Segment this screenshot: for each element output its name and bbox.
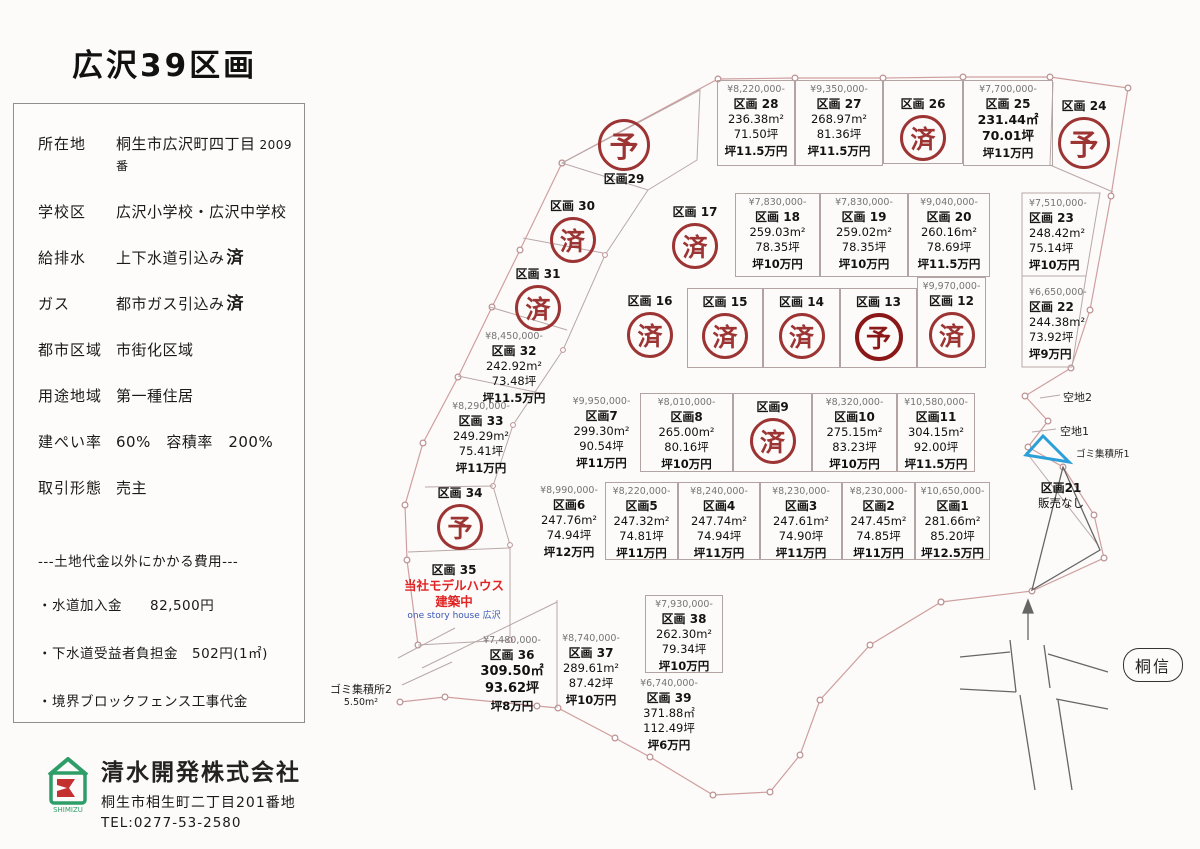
company-tel: TEL:0277-53-2580 [101, 815, 301, 831]
lot-tsubo: 73.92坪 [1029, 330, 1092, 345]
lot-tsubo: 79.34坪 [646, 642, 722, 657]
lot-price: ¥7,830,000- [821, 196, 907, 209]
status-stamp: 済 [550, 217, 596, 263]
lot-unit-price: 坪6万円 [628, 737, 710, 753]
lot-area: 289.61m² [558, 661, 624, 676]
lot-area: 259.03m² [736, 225, 819, 240]
lot-tsubo: 93.62坪 [468, 680, 556, 697]
lot-tsubo: 74.85坪 [843, 529, 914, 544]
lot-tsubo: 81.36坪 [796, 127, 882, 142]
lot-27[interactable]: ¥9,350,000- 区画 27 268.97m² 81.36坪 坪11.5万… [795, 80, 883, 166]
info-row-transaction: 取引形態 売主 [38, 478, 294, 498]
lot-area: 265.00m² [641, 425, 732, 440]
status-stamp: 予 [598, 119, 650, 171]
lot-7[interactable]: ¥9,950,000- 区画7 299.30m² 90.54坪 坪11万円 [563, 393, 640, 472]
lot-number: 区画 39 [628, 691, 710, 706]
lot-number: 区画 14 [764, 295, 839, 310]
lot-12[interactable]: ¥9,970,000- 区画 12 済 [917, 277, 986, 368]
status-stamp: 済 [702, 313, 748, 359]
lot-number: 区画 31 [502, 267, 574, 282]
lot-area: 259.02m² [821, 225, 907, 240]
lot-price: ¥8,740,000- [558, 632, 624, 645]
lot-tsubo: 71.50坪 [718, 127, 794, 142]
lot-35-model-house[interactable]: 区画 35 当社モデルハウス 建築中 one story house 広沢 [403, 562, 505, 626]
lot-unit-price: 坪10万円 [641, 456, 732, 472]
status-stamp: 済 [672, 223, 718, 269]
lot-number: 区画3 [761, 499, 841, 514]
lot-tsubo: 73.48坪 [470, 374, 558, 389]
lot-area: 260.16m² [909, 225, 989, 240]
lot-price: ¥6,740,000- [628, 677, 710, 690]
lot-10[interactable]: ¥8,320,000- 区画10 275.15m² 83.23坪 坪10万円 [812, 393, 897, 472]
lot-11[interactable]: ¥10,580,000- 区画11 304.15m² 92.00坪 坪11.5万… [897, 393, 975, 472]
lot-price: ¥8,450,000- [470, 330, 558, 343]
lot-19[interactable]: ¥7,830,000- 区画 19 259.02m² 78.35坪 坪10万円 [820, 193, 908, 277]
lot-number: 区画 37 [558, 646, 624, 661]
lot-36[interactable]: ¥7,480,000- 区画 36 309.50㎡ 93.62坪 坪8万円 [468, 632, 556, 706]
lot-unit-price: 坪11万円 [679, 545, 759, 561]
lot-price: ¥8,220,000- [718, 83, 794, 96]
lot-unit-price: 坪10万円 [821, 256, 907, 272]
lot-21-not-for-sale: 区画21 販売なし [1028, 480, 1094, 520]
status-stamp: 済 [627, 312, 673, 358]
lot-tsubo: 75.14坪 [1029, 241, 1100, 256]
lot-unit-price: 坪11.5万円 [718, 143, 794, 159]
lot-price: ¥8,290,000- [437, 400, 525, 413]
trash-station-2-label: ゴミ集積所2 5.50m² [330, 681, 392, 708]
lot-13[interactable]: 区画 13 予 [840, 288, 917, 368]
north-arrow-icon [1023, 600, 1033, 613]
lot-price: ¥7,700,000- [964, 83, 1052, 96]
status-stamp: 済 [929, 312, 975, 358]
lot-1[interactable]: ¥10,650,000- 区画1 281.66m² 85.20坪 坪12.5万円 [915, 482, 990, 560]
lot-3[interactable]: ¥8,230,000- 区画3 247.61m² 74.90坪 坪11万円 [760, 482, 842, 560]
lot-area: 244.38m² [1029, 315, 1092, 330]
lot-number: 区画11 [898, 410, 974, 425]
lot-number: 区画10 [813, 410, 896, 425]
lot-unit-price: 坪12万円 [533, 544, 605, 560]
lot-number: 区画 15 [688, 295, 762, 310]
lot-32[interactable]: ¥8,450,000- 区画 32 242.92m² 73.48坪 坪11.5万… [470, 328, 558, 390]
company-block: SHIMIZU 清水開発株式会社 桐生市相生町二丁目201番地 TEL:0277… [45, 753, 301, 831]
lot-area: 299.30m² [563, 424, 640, 439]
lot-25[interactable]: ¥7,700,000- 区画 25 231.44㎡ 70.01坪 坪11万円 [963, 80, 1053, 166]
lot-price: ¥8,990,000- [533, 484, 605, 497]
lot-area: 247.76m² [533, 513, 605, 528]
lot-area: 249.29m² [437, 429, 525, 444]
lot-tsubo: 74.81坪 [606, 529, 677, 544]
lot-unit-price: 坪11万円 [606, 545, 677, 561]
lot-number: 区画29 [593, 172, 655, 187]
lot-number: 区画 32 [470, 344, 558, 359]
svg-text:SHIMIZU: SHIMIZU [53, 806, 83, 814]
lot-price: ¥8,220,000- [606, 485, 677, 498]
lot-area: 247.74m² [679, 514, 759, 529]
status-stamp: 済 [900, 115, 946, 161]
lot-22[interactable]: ¥6,650,000- 区画 22 244.38m² 73.92坪 坪9万円 [1022, 284, 1092, 368]
trash-station-1-triangle-icon [1026, 436, 1069, 462]
cost-item-sewer: ・下水道受益者負担金 502円(1㎡) [38, 642, 294, 662]
lot-number: 区画 38 [646, 612, 722, 627]
lot-24[interactable]: 区画 24 予 [1048, 98, 1120, 174]
lot-area: 247.45m² [843, 514, 914, 529]
page-title: 広沢39区画 [72, 40, 257, 85]
lot-unit-price: 坪9万円 [1029, 346, 1092, 362]
lot-tsubo: 85.20坪 [916, 529, 989, 544]
trash-station-2-area: 5.50m² [330, 697, 392, 708]
lot-area: 236.38m² [718, 112, 794, 127]
lot-31[interactable]: 区画 31 済 [502, 266, 574, 332]
status-stamp: 済 [779, 313, 825, 359]
lot-unit-price: 坪11.5万円 [909, 256, 989, 272]
model-house-note-en: one story house 広沢 [403, 610, 505, 622]
lot-23[interactable]: ¥7,510,000- 区画 23 248.42m² 75.14坪 坪10万円 [1022, 195, 1100, 275]
status-stamp: 予 [1058, 117, 1110, 169]
lot-price: ¥7,510,000- [1029, 197, 1100, 210]
property-info-panel: 所在地 桐生市広沢町四丁目2009番 学校区 広沢小学校・広沢中学校 給排水 上… [13, 103, 305, 723]
lot-tsubo: 90.54坪 [563, 439, 640, 454]
lot-area: 247.61m² [761, 514, 841, 529]
lot-number: 区画 33 [437, 414, 525, 429]
info-row-coverage: 建ぺい率 60% 容積率 200% [38, 432, 294, 452]
lot-33[interactable]: ¥8,290,000- 区画 33 249.29m² 75.41坪 坪11万円 [437, 398, 525, 466]
lot-unit-price: 坪10万円 [736, 256, 819, 272]
cost-item-water: ・水道加入金 82,500円 [38, 594, 294, 614]
lot-number: 区画1 [916, 499, 989, 514]
lot-area: 304.15m² [898, 425, 974, 440]
lot-number: 区画 17 [655, 205, 735, 220]
lot-price: ¥9,040,000- [909, 196, 989, 209]
lot-price: ¥7,930,000- [646, 598, 722, 611]
lot-38[interactable]: ¥7,930,000- 区画 38 262.30m² 79.34坪 坪10万円 [645, 595, 723, 673]
lot-number: 区画 12 [918, 294, 985, 309]
lot-price: ¥9,350,000- [796, 83, 882, 96]
lot-26[interactable]: 区画 26 済 [883, 80, 963, 164]
lot-price: ¥8,230,000- [843, 485, 914, 498]
lot-2[interactable]: ¥8,230,000- 区画2 247.45m² 74.85坪 坪11万円 [842, 482, 915, 560]
lot-unit-price: 坪10万円 [646, 658, 722, 674]
status-stamp: 済 [750, 418, 796, 464]
lot-number: 区画 36 [468, 648, 556, 663]
lot-number: 区画 25 [964, 97, 1052, 112]
trash-station-1-label: ゴミ集積所1 [1076, 446, 1130, 460]
company-address: 桐生市相生町二丁目201番地 [101, 792, 301, 812]
lot-tsubo: 74.94坪 [533, 528, 605, 543]
lot-price: ¥9,950,000- [563, 395, 640, 408]
lot-number: 区画21 [1028, 481, 1094, 496]
lot-9[interactable]: 区画9 済 [733, 393, 812, 472]
lot-number: 区画 26 [884, 97, 962, 112]
lot-unit-price: 坪11万円 [964, 145, 1052, 161]
lot-area: 247.32m² [606, 514, 677, 529]
lot-price: ¥6,650,000- [1029, 286, 1092, 299]
lot-price: ¥9,970,000- [918, 280, 985, 293]
lot-30[interactable]: 区画 30 済 [535, 198, 610, 264]
lot-unit-price: 坪10万円 [1029, 257, 1100, 273]
lot-unit-price: 坪10万円 [813, 456, 896, 472]
lot-6[interactable]: ¥8,990,000- 区画6 247.76m² 74.94坪 坪12万円 [533, 482, 605, 560]
lot-area: 248.42m² [1029, 226, 1100, 241]
lot-unit-price: 坪11万円 [563, 455, 640, 471]
open-space-1-label: 空地1 [1060, 423, 1089, 439]
lot-29[interactable]: 予 区画29 [593, 116, 655, 182]
lot-number: 区画 28 [718, 97, 794, 112]
lot-note: 販売なし [1028, 496, 1094, 511]
lot-tsubo: 92.00坪 [898, 440, 974, 455]
lot-price: ¥7,830,000- [736, 196, 819, 209]
lot-28[interactable]: ¥8,220,000- 区画 28 236.38m² 71.50坪 坪11.5万… [717, 80, 795, 166]
lot-price: ¥8,240,000- [679, 485, 759, 498]
lot-tsubo: 74.90坪 [761, 529, 841, 544]
lot-price: ¥10,650,000- [916, 485, 989, 498]
info-row-location: 所在地 桐生市広沢町四丁目2009番 [38, 134, 294, 176]
company-name: 清水開発株式会社 [101, 753, 301, 787]
lot-unit-price: 坪11万円 [843, 545, 914, 561]
lot-unit-price: 坪11万円 [761, 545, 841, 561]
lot-unit-price: 坪8万円 [468, 698, 556, 714]
shimizu-logo-icon: SHIMIZU [45, 753, 91, 815]
lot-area: 275.15m² [813, 425, 896, 440]
lot-number: 区画 23 [1029, 211, 1100, 226]
lot-number: 区画4 [679, 499, 759, 514]
lot-tsubo: 70.01坪 [964, 128, 1052, 144]
lot-number: 区画 27 [796, 97, 882, 112]
lot-number: 区画7 [563, 409, 640, 424]
lot-37[interactable]: ¥8,740,000- 区画 37 289.61m² 87.42坪 坪10万円 [558, 630, 624, 706]
lot-unit-price: 坪10万円 [558, 692, 624, 708]
lot-unit-price: 坪11.5万円 [898, 456, 974, 472]
lot-tsubo: 78.35坪 [821, 240, 907, 255]
extra-costs-header: ---土地代金以外にかかる費用--- [38, 550, 294, 570]
info-row-zoning: 用途地域 第一種住居 [38, 386, 294, 406]
lot-number: 区画 20 [909, 210, 989, 225]
lot-20[interactable]: ¥9,040,000- 区画 20 260.16m² 78.69坪 坪11.5万… [908, 193, 990, 277]
lot-number: 区画 34 [425, 486, 495, 501]
status-stamp: 済 [515, 285, 561, 331]
info-row-water: 給排水 上下水道引込み済 [38, 248, 294, 268]
lot-number: 区画 35 [403, 563, 505, 578]
lot-unit-price: 坪11.5万円 [796, 143, 882, 159]
lot-39[interactable]: ¥6,740,000- 区画 39 371.88㎡ 112.49坪 坪6万円 [628, 675, 710, 755]
lot-tsubo: 78.69坪 [909, 240, 989, 255]
info-row-city-area: 都市区域 市街化区域 [38, 340, 294, 360]
lot-tsubo: 112.49坪 [628, 721, 710, 736]
lot-number: 区画 13 [841, 295, 916, 310]
lot-14[interactable]: 区画 14 済 [763, 288, 840, 368]
lot-number: 区画 19 [821, 210, 907, 225]
lot-5[interactable]: ¥8,220,000- 区画5 247.32m² 74.81坪 坪11万円 [605, 482, 678, 560]
lot-17[interactable]: 区画 17 済 [655, 193, 735, 277]
lot-number: 区画2 [843, 499, 914, 514]
lot-unit-price: 坪12.5万円 [916, 545, 989, 561]
lot-number: 区画 30 [535, 199, 610, 214]
open-space-2-label: 空地2 [1063, 389, 1092, 405]
lot-tsubo: 80.16坪 [641, 440, 732, 455]
lot-unit-price: 坪11万円 [437, 460, 525, 476]
lot-tsubo: 87.42坪 [558, 676, 624, 691]
lot-tsubo: 74.94坪 [679, 529, 759, 544]
lot-number: 区画8 [641, 410, 732, 425]
lot-number: 区画 16 [613, 294, 687, 309]
lot-tsubo: 78.35坪 [736, 240, 819, 255]
lot-4[interactable]: ¥8,240,000- 区画4 247.74m² 74.94坪 坪11万円 [678, 482, 760, 560]
lot-area: 371.88㎡ [628, 706, 710, 721]
info-row-gas: ガス 都市ガス引込み済 [38, 294, 294, 314]
kirishin-bank-label: 桐信 [1123, 648, 1183, 682]
lot-number: 区画 22 [1029, 300, 1092, 315]
lot-8[interactable]: ¥8,010,000- 区画8 265.00m² 80.16坪 坪10万円 [640, 393, 733, 472]
lot-price: ¥7,480,000- [468, 634, 556, 647]
info-row-school: 学校区 広沢小学校・広沢中学校 [38, 202, 294, 222]
lot-price: ¥8,010,000- [641, 396, 732, 409]
lot-number: 区画 24 [1048, 99, 1120, 114]
lot-15[interactable]: 区画 15 済 [687, 288, 763, 368]
lot-16[interactable]: 区画 16 済 [613, 288, 687, 368]
model-house-note-line1: 当社モデルハウス [403, 578, 505, 594]
lot-area: 281.66m² [916, 514, 989, 529]
status-stamp: 予 [855, 313, 903, 361]
lot-price: ¥10,580,000- [898, 396, 974, 409]
lot-area: 262.30m² [646, 627, 722, 642]
lot-area: 268.97m² [796, 112, 882, 127]
lot-number: 区画 18 [736, 210, 819, 225]
lot-price: ¥8,230,000- [761, 485, 841, 498]
lot-18[interactable]: ¥7,830,000- 区画 18 259.03m² 78.35坪 坪10万円 [735, 193, 820, 277]
lot-number: 区画6 [533, 498, 605, 513]
lot-area: 242.92m² [470, 359, 558, 374]
lot-34[interactable]: 区画 34 予 [425, 485, 495, 545]
lot-area: 309.50㎡ [468, 663, 556, 680]
lot-price: ¥8,320,000- [813, 396, 896, 409]
lot-number: 区画9 [734, 400, 811, 415]
model-house-note-line2: 建築中 [403, 594, 505, 610]
lot-tsubo: 83.23坪 [813, 440, 896, 455]
lot-number: 区画5 [606, 499, 677, 514]
lot-tsubo: 75.41坪 [437, 444, 525, 459]
lot-area: 231.44㎡ [964, 112, 1052, 128]
cost-item-fence: ・境界ブロックフェンス工事代金 [38, 690, 294, 710]
status-stamp: 予 [437, 504, 483, 550]
